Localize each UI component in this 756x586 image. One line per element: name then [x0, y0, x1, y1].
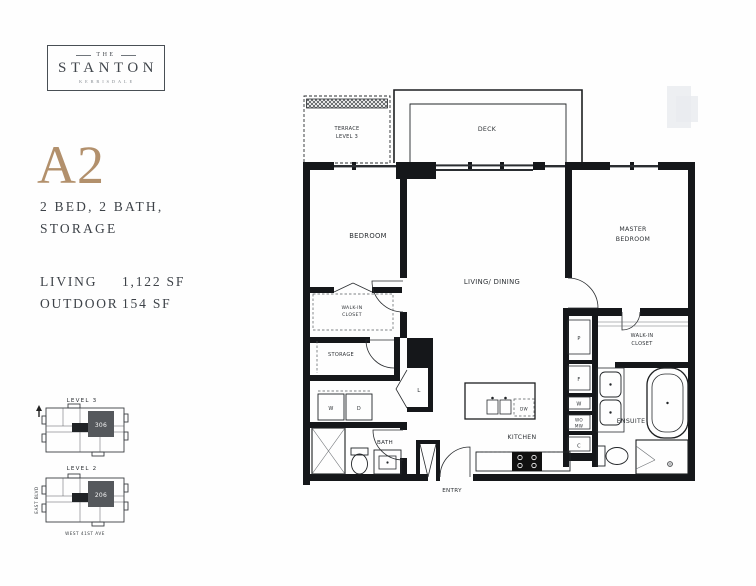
street-label-east-blvd: EAST BLVD: [34, 486, 39, 513]
label-dryer: D: [357, 406, 361, 412]
label-linen: L: [417, 388, 421, 394]
label-coat-closet: C: [577, 444, 581, 450]
laundry: W D: [318, 394, 372, 420]
deck: DECK: [394, 90, 582, 163]
master-walkin-closet: WALK-IN CLOSET: [598, 322, 688, 347]
label-wall-oven: WO: [575, 418, 583, 423]
label-master-walkin-line1: WALK-IN: [631, 333, 654, 339]
keyplan-level2-unit-number: 206: [95, 492, 107, 499]
north-arrow-icon: [36, 405, 42, 417]
label-deck: DECK: [478, 126, 497, 133]
label-wine: W: [576, 402, 581, 408]
vanity-sink: [374, 450, 401, 474]
label-terrace-line2: LEVEL 3: [336, 134, 358, 140]
label-ensuite: ENSUITE: [617, 418, 646, 425]
label-terrace-line1: TERRACE: [333, 126, 359, 132]
island-sink: [487, 400, 498, 414]
keyplan-level2: LEVEL 2 206 EAST BLVD WEST 41ST AVE: [34, 466, 128, 536]
label-pantry: P: [577, 336, 580, 342]
bathtub: [647, 368, 688, 438]
label-bedroom-walkin-line1: WALK-IN: [341, 305, 362, 311]
scan-artifact: [667, 86, 698, 128]
toilet: [351, 448, 368, 474]
bathroom: BATH: [312, 428, 401, 474]
stove: [512, 452, 542, 471]
label-dishwasher: DW: [520, 407, 528, 412]
floor-plan-drawing: TERRACE LEVEL 3 DECK: [0, 0, 756, 586]
street-label-west-41st-ave: WEST 41ST AVE: [65, 531, 105, 536]
label-living-dining: LIVING/ DINING: [464, 278, 520, 286]
label-bedroom-walkin-line2: CLOSET: [342, 312, 362, 318]
floorplan-sheet: THE STANTON KERRISDALE A2 2 BED, 2 BATH,…: [0, 0, 756, 586]
label-bedroom: BEDROOM: [349, 232, 387, 240]
label-master-line2: BEDROOM: [616, 236, 650, 243]
label-washer: W: [328, 406, 333, 412]
label-bath: BATH: [377, 440, 393, 446]
keyplan-level3: LEVEL 3 306: [36, 398, 128, 456]
kitchen: DW KITCHEN: [465, 383, 570, 471]
terrace: TERRACE LEVEL 3: [304, 96, 390, 163]
label-fridge: F: [577, 377, 580, 383]
label-master-walkin-line2: CLOSET: [631, 341, 653, 347]
ensuite: ENSUITE: [597, 368, 688, 474]
label-master-line1: MASTER: [619, 226, 647, 233]
label-entry: ENTRY: [442, 488, 462, 494]
room-labels: BEDROOM MASTER BEDROOM LIVING/ DINING WA…: [328, 226, 650, 494]
label-microwave: MW: [575, 424, 583, 429]
kitchen-island: DW: [465, 383, 535, 419]
ensuite-toilet: [597, 446, 628, 466]
keyplan-level3-unit-number: 306: [95, 422, 107, 429]
ensuite-shower: [636, 440, 688, 474]
label-storage: STORAGE: [328, 352, 354, 358]
keyplan-level2-title: LEVEL 2: [67, 466, 98, 472]
island-sink: [500, 400, 511, 414]
label-kitchen: KITCHEN: [508, 434, 537, 441]
shower: [312, 428, 345, 474]
keyplan-level3-title: LEVEL 3: [67, 398, 98, 404]
